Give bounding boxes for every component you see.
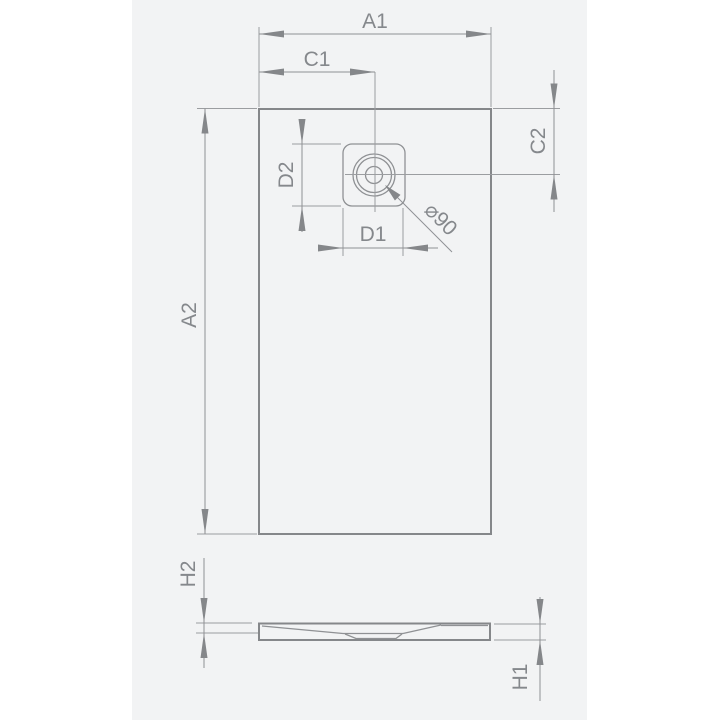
a1-arrow-right: [466, 31, 491, 38]
dimension-h1: H1: [494, 597, 546, 701]
d1-arrow-right: [403, 245, 428, 252]
dimension-c2: C2: [493, 70, 560, 212]
a1-arrow-left: [259, 31, 284, 38]
a2-arrow-bottom: [202, 509, 209, 534]
a2-arrow-top: [202, 109, 209, 134]
a1-label: A1: [362, 10, 388, 33]
c2-arrow-top: [551, 84, 558, 109]
c2-label: C2: [527, 128, 550, 155]
page: A1 C1 C2: [0, 0, 720, 720]
dimension-d2: D2: [275, 119, 341, 232]
d1-label: D1: [360, 223, 387, 246]
plan-view: A1 C1 C2: [178, 10, 560, 534]
c2-arrow-bottom: [551, 175, 558, 200]
dimension-c1: C1: [259, 48, 375, 76]
dimension-a2: A2: [178, 109, 257, 535]
a2-label: A2: [178, 302, 201, 328]
shower-tray-technical-drawing: A1 C1 C2: [0, 0, 720, 720]
d2-arrow-bottom: [299, 206, 306, 231]
profile-drain-recess: [345, 634, 402, 639]
dimension-h2: H2: [177, 558, 258, 668]
d1-arrow-left: [318, 245, 343, 252]
diameter-label: ⌀90: [420, 199, 462, 241]
h1-arrow-top: [537, 599, 544, 624]
h2-arrow-top: [201, 598, 208, 623]
d2-arrow-top: [299, 119, 306, 144]
profile-slope-left: [262, 626, 343, 634]
dimension-d1: D1: [318, 208, 438, 256]
h1-arrow-bottom: [537, 640, 544, 665]
h2-label: H2: [177, 561, 200, 588]
profile-view: H2 H1: [177, 558, 546, 701]
h2-arrow-bottom: [201, 633, 208, 658]
d2-label: D2: [275, 162, 298, 189]
h1-label: H1: [509, 664, 532, 691]
c1-label: C1: [304, 48, 331, 71]
c1-arrow-right: [350, 69, 375, 76]
profile-slope-right: [403, 625, 441, 634]
c1-arrow-left: [259, 69, 284, 76]
diameter-callout: ⌀90: [385, 185, 461, 252]
